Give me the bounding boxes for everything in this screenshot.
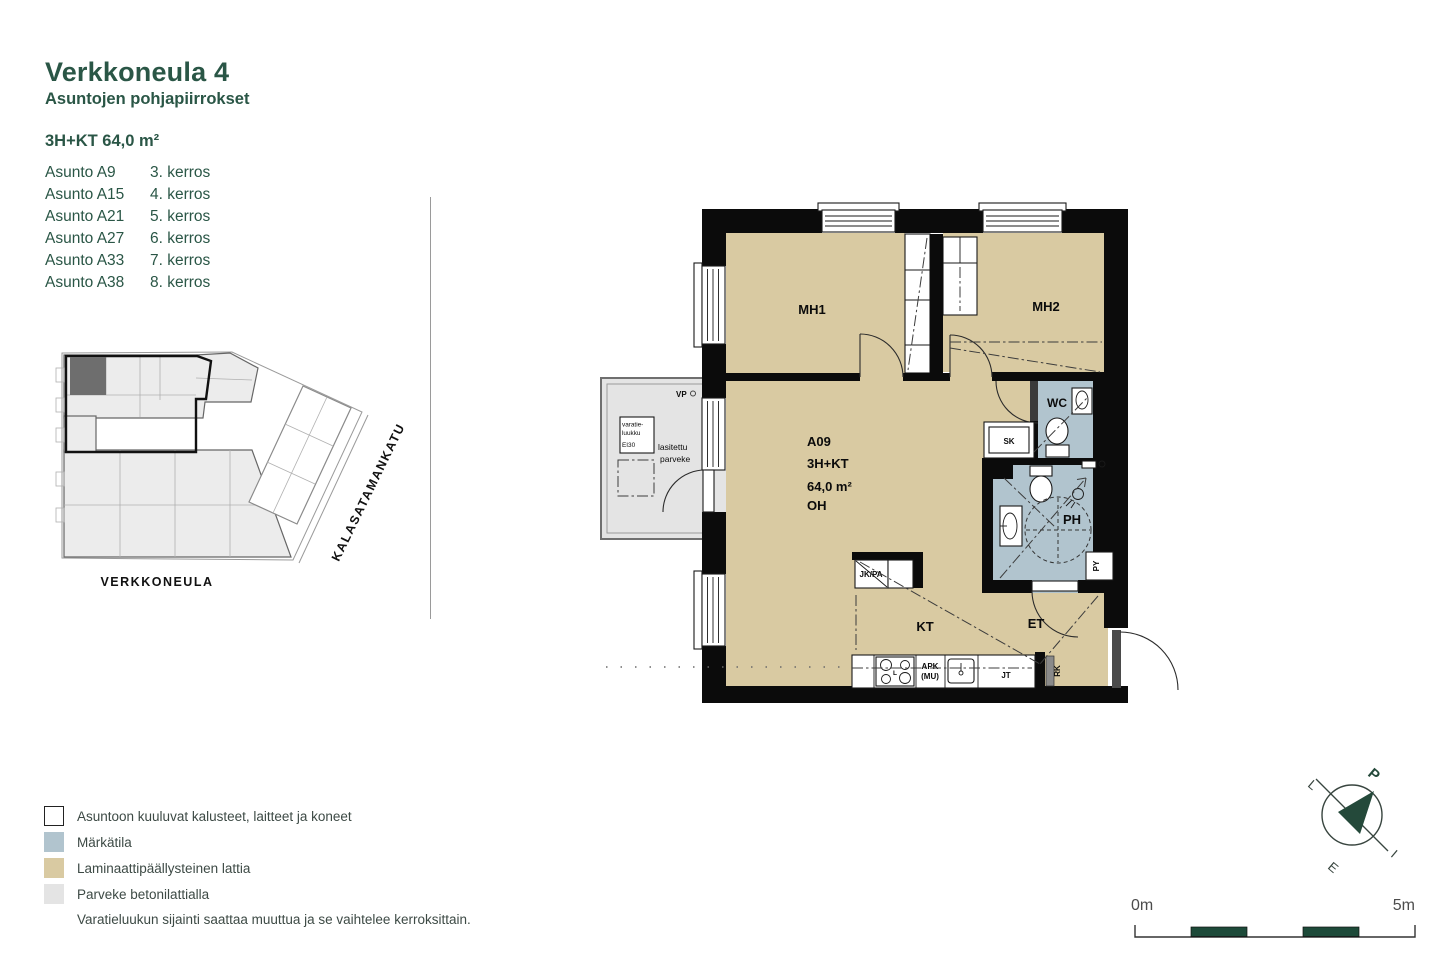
compass-west: L (1305, 777, 1320, 793)
north-arrow-icon (1338, 791, 1374, 834)
stove-label: L (893, 670, 897, 677)
room-label-oh: OH (807, 498, 827, 513)
apartment-list-item: Asunto A215. kerros (45, 206, 249, 228)
bathroom-door-leaf (1032, 581, 1078, 591)
unit-type-label: 3H+KT (807, 456, 849, 471)
scale-end-label: 5m (1393, 897, 1415, 914)
apartment-list-item: Asunto A276. kerros (45, 228, 249, 250)
legend-item: Laminaattipäällysteinen lattia (44, 858, 471, 878)
apartment-list-item: Asunto A388. kerros (45, 272, 249, 294)
svg-text:EI30: EI30 (622, 442, 636, 449)
highlighted-apartment (70, 357, 106, 395)
legend-item: Parveke betonilattialla (44, 884, 471, 904)
floorplan-sheet: Verkkoneula 4 Asuntojen pohjapiirrokset … (0, 0, 1440, 960)
scale-segment (1191, 927, 1247, 937)
page-subtitle: Asuntojen pohjapiirrokset (45, 88, 249, 110)
room-label-wc: WC (1047, 396, 1067, 410)
wc-toilet (1046, 418, 1068, 444)
room-label-et: ET (1028, 616, 1045, 631)
legend-note: Varatieluukun sijainti saattaa muuttua j… (77, 912, 471, 927)
unit-area-label: 64,0 m² (807, 479, 852, 494)
ph-toilet-tank (1030, 466, 1052, 476)
room-label-mh1: MH1 (798, 302, 825, 317)
compass: P L I E (1295, 755, 1415, 880)
sk-label: SK (1003, 437, 1014, 446)
livingroom-floor (726, 381, 982, 686)
glazed-balcony-label: lasitettu (658, 442, 688, 452)
ph-toilet (1030, 476, 1052, 502)
site-building-label: VERKKONEULA (100, 575, 213, 589)
svg-text:(MU): (MU) (921, 672, 939, 681)
floor-plan: varatie- luukku EI30 VP lasitettu parvek… (580, 190, 1200, 715)
svg-text:parveke: parveke (660, 454, 691, 464)
legend-swatch-wetroom (44, 832, 64, 852)
compass-south: E (1325, 859, 1342, 876)
scale-start-label: 0m (1131, 897, 1153, 914)
balcony-floor (600, 377, 712, 540)
rk-label: RK (1053, 665, 1062, 677)
legend-swatch-balcony (44, 884, 64, 904)
scale-baseline (1135, 925, 1415, 937)
legend-swatch-furniture (44, 806, 64, 826)
apartment-list-item: Asunto A93. kerros (45, 162, 249, 184)
wc-door-leaf (1030, 381, 1038, 421)
apartment-list-item: Asunto A154. kerros (45, 184, 249, 206)
unit-id-label: A09 (807, 434, 831, 449)
jt-label: JT (1001, 671, 1010, 680)
legend-item: Asuntoon kuuluvat kalusteet, laitteet ja… (44, 806, 471, 826)
legend-swatch-laminate (44, 858, 64, 878)
py-label: PY (1092, 560, 1101, 571)
header: Verkkoneula 4 Asuntojen pohjapiirrokset … (45, 56, 249, 294)
site-street-label: KALASATAMANKATU (329, 421, 408, 563)
jkpa-label: JK/PA (860, 570, 883, 579)
legend: Asuntoon kuuluvat kalusteet, laitteet ja… (44, 806, 471, 927)
balcony-door-leaf (703, 470, 714, 512)
scale-bar: 0m 5m (1120, 885, 1430, 947)
unit-type-heading: 3H+KT 64,0 m² (45, 130, 249, 152)
site-plan: VERKKONEULA KALASATAMANKATU (50, 345, 440, 595)
room-label-ph: PH (1063, 512, 1081, 527)
apartment-list-item: Asunto A337. kerros (45, 250, 249, 272)
compass-east: I (1388, 847, 1400, 861)
dishwasher-label: APK (922, 662, 939, 671)
scale-segment (1303, 927, 1359, 937)
legend-item: Märkätila (44, 832, 471, 852)
svg-text:luukku: luukku (622, 430, 641, 437)
compass-north: P (1364, 765, 1383, 784)
hatch-label: varatie- (622, 422, 643, 429)
room-label-mh2: MH2 (1032, 299, 1059, 314)
entry-door-leaf (1112, 630, 1121, 688)
page-title: Verkkoneula 4 (45, 56, 249, 88)
room-label-kt: KT (916, 619, 933, 634)
apartment-list: Asunto A93. kerros Asunto A154. kerros A… (45, 162, 249, 294)
building-1-connector (64, 416, 96, 452)
vp-label: VP (676, 390, 687, 399)
section-divider (430, 197, 431, 619)
